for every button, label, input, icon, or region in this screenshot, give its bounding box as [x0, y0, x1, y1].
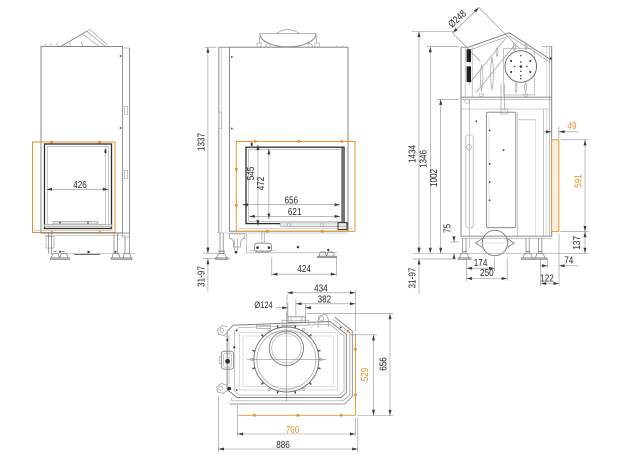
svg-text:49: 49 — [567, 121, 576, 132]
svg-text:74: 74 — [564, 255, 573, 266]
svg-text:656: 656 — [284, 196, 298, 207]
svg-text:472: 472 — [256, 176, 267, 190]
svg-text:250: 250 — [480, 268, 494, 279]
svg-text:424: 424 — [297, 264, 311, 275]
svg-text:760: 760 — [286, 425, 300, 436]
svg-text:886: 886 — [276, 440, 290, 451]
svg-text:656: 656 — [378, 357, 389, 371]
svg-text:1002: 1002 — [429, 169, 440, 187]
svg-text:31-97: 31-97 — [407, 267, 418, 288]
svg-text:1346: 1346 — [419, 150, 430, 168]
svg-text:426: 426 — [73, 180, 87, 191]
svg-text:621: 621 — [288, 207, 302, 218]
svg-text:591: 591 — [573, 174, 584, 188]
svg-text:1434: 1434 — [407, 145, 418, 163]
svg-text:1337: 1337 — [196, 133, 207, 151]
svg-text:137: 137 — [572, 236, 583, 250]
svg-text:75: 75 — [442, 224, 453, 233]
svg-text:122: 122 — [540, 273, 554, 284]
svg-text:Ø124: Ø124 — [254, 300, 272, 310]
svg-text:31-97: 31-97 — [196, 266, 207, 287]
svg-text:529: 529 — [360, 367, 371, 381]
svg-text:382: 382 — [318, 295, 332, 306]
svg-text:434: 434 — [314, 284, 328, 295]
